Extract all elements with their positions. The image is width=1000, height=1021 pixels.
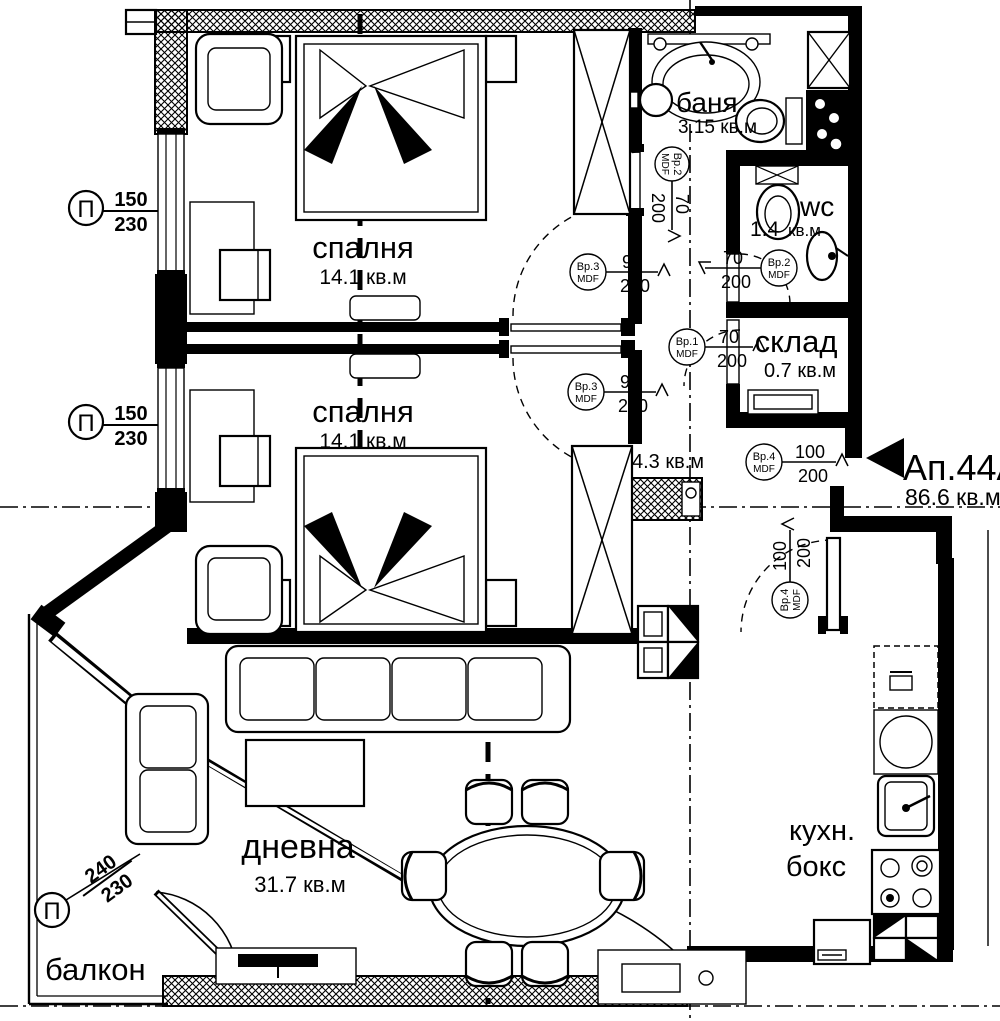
door-id: Вр.1 (676, 336, 699, 348)
door-label-6: Вр.4 MDF 100 200 (746, 442, 848, 486)
wc-west-wall (726, 166, 740, 254)
door-width: 100 (770, 541, 790, 571)
door-height: 200 (794, 538, 814, 568)
kitchen-base-cabinet (874, 916, 938, 960)
window-height: 230 (114, 428, 147, 450)
right-wall-stub (845, 426, 862, 458)
window-symbol: П (77, 410, 94, 437)
oven (874, 710, 938, 774)
balcony-name: балкон (45, 952, 146, 987)
window-left-1 (157, 128, 185, 276)
apartment-area: 86.6 кв.м (905, 484, 1000, 510)
door-material: MDF (659, 153, 670, 175)
door-label-5: Вр.1 MDF 70 200 (669, 327, 765, 371)
storage-area: 0.7 кв.м (764, 360, 836, 382)
door-material: MDF (792, 589, 803, 611)
double-bed (296, 448, 486, 632)
double-bed (296, 36, 486, 220)
entrance (818, 438, 904, 634)
door-id: Вр.3 (577, 261, 600, 273)
bath-south-wall (726, 150, 852, 166)
entrance-corner-wall (936, 530, 952, 564)
bedroom1-door-leaf (511, 324, 621, 331)
dining-table (429, 826, 625, 946)
direction-marker (782, 518, 794, 530)
door-material: MDF (575, 394, 597, 405)
direction-marker (658, 264, 670, 276)
door-material: MDF (577, 274, 599, 285)
door-cassette-bottom (350, 354, 420, 378)
door-material: MDF (676, 349, 698, 360)
window-label-1: П 150 230 (69, 189, 158, 236)
door-height: 200 (717, 351, 747, 371)
tv-stand (216, 948, 356, 984)
window-symbol: П (77, 196, 94, 223)
entrance-arrow (866, 438, 904, 478)
floor-plan-drawing: П 150 230 П 150 230 П 240 230 Вр.3 MDF 9… (0, 0, 1000, 1021)
living-area: 31.7 кв.м (254, 872, 345, 897)
door-height: 200 (618, 396, 648, 416)
fridge (874, 646, 938, 708)
door-material: MDF (753, 464, 775, 475)
door-height: 200 (648, 193, 668, 223)
door-width: 100 (795, 442, 825, 462)
door-label-1: Вр.3 MDF 90 200 (570, 252, 670, 296)
door-height: 200 (721, 272, 751, 292)
door-id: Вр.2 (671, 153, 683, 176)
door-width: 70 (672, 194, 692, 214)
door-height: 200 (798, 466, 828, 486)
left-pier-mid (155, 274, 187, 364)
storage-name: склад (755, 324, 838, 359)
door-label-4: Вр.2 MDF 70 200 (699, 248, 797, 292)
kitchen-label-line2: бокс (786, 851, 846, 883)
kitchen-label-line1: кухн. (789, 815, 855, 847)
bedroom1-name: спалня (312, 230, 414, 265)
wc-name: wc (799, 191, 834, 222)
door-label-7: Вр.4 MDF 100 200 (770, 518, 814, 618)
door-hinge (840, 616, 848, 634)
living-furniture (126, 646, 746, 1004)
door-id: Вр.4 (779, 589, 791, 612)
storage-shelf (748, 390, 818, 414)
kitchen-sink (878, 776, 934, 836)
bath-area: 3.15 кв.м (678, 117, 757, 138)
top-right-wall (695, 6, 860, 16)
living-name: дневна (241, 828, 354, 866)
floor-plan-sheet: П 150 230 П 150 230 П 240 230 Вр.3 MDF 9… (0, 0, 1000, 1021)
direction-marker (668, 230, 680, 242)
entrance-jamb-wall (830, 486, 844, 532)
bedroom2-area: 14.1 кв.м (319, 430, 406, 453)
coffee-table (246, 740, 364, 806)
door-height: 200 (620, 276, 650, 296)
door-width: 70 (723, 248, 743, 268)
washing-machine (808, 32, 850, 88)
storage-west-wall (726, 384, 740, 414)
window-height: 230 (114, 214, 147, 236)
wc-area-unit: кв.м (788, 221, 821, 240)
bedroom2-door-leaf (511, 346, 621, 353)
direction-marker (656, 384, 668, 396)
bedroom2-wardrobe (572, 446, 632, 634)
electrical-box (598, 950, 746, 1004)
entrance-door-leaf (827, 538, 840, 630)
door-id: Вр.4 (753, 451, 776, 463)
desk (190, 390, 270, 502)
window-width: 150 (114, 403, 147, 425)
armchair (196, 34, 282, 124)
loveseat (126, 694, 208, 844)
wc-area-num: 1.4 (750, 218, 780, 241)
wc-storage-wall (726, 302, 852, 318)
bedroom1-wardrobe (574, 30, 630, 214)
window-symbol: П (43, 898, 60, 925)
bath-name: баня (676, 87, 738, 118)
door-width: 70 (719, 327, 739, 347)
hall-area: 4.3 кв.м (632, 451, 704, 473)
sofa (226, 646, 570, 732)
left-pier-top (155, 10, 187, 134)
window-label-2: П 150 230 (69, 403, 158, 450)
kitchen-side-table (814, 920, 870, 964)
door-cassette-top (350, 296, 420, 320)
kitchen-fixtures (814, 646, 940, 964)
door-id: Вр.2 (768, 257, 791, 269)
desk (190, 202, 270, 314)
desk-chair (220, 250, 270, 300)
stove (872, 850, 940, 914)
window-left-2 (157, 362, 185, 494)
door-hinge (818, 616, 826, 634)
nightstand (486, 580, 516, 626)
door-width: 90 (622, 252, 642, 272)
armchair (196, 546, 282, 634)
nightstand (486, 36, 516, 82)
entrance-top-wall (842, 516, 952, 532)
door-id: Вр.3 (575, 381, 598, 393)
door-label-2: Вр.3 MDF 90 200 (568, 372, 668, 416)
door-label-3: Вр.2 MDF 70 200 (648, 147, 692, 242)
hall-cabinet (638, 606, 698, 678)
window-label-3: П 240 230 (35, 843, 146, 927)
door-material: MDF (768, 270, 790, 281)
bedroom1-area: 14.1 кв.м (319, 266, 406, 289)
door-width: 90 (620, 372, 640, 392)
window-width: 150 (114, 189, 147, 211)
bath-duct-shaft (806, 90, 850, 150)
bedroom2-name: спалня (312, 394, 414, 429)
balcony-diagonal-wall (40, 524, 170, 618)
apartment-number: Ап.44А (903, 447, 1000, 488)
desk-chair (220, 436, 270, 486)
top-hatched-wall (155, 10, 695, 32)
